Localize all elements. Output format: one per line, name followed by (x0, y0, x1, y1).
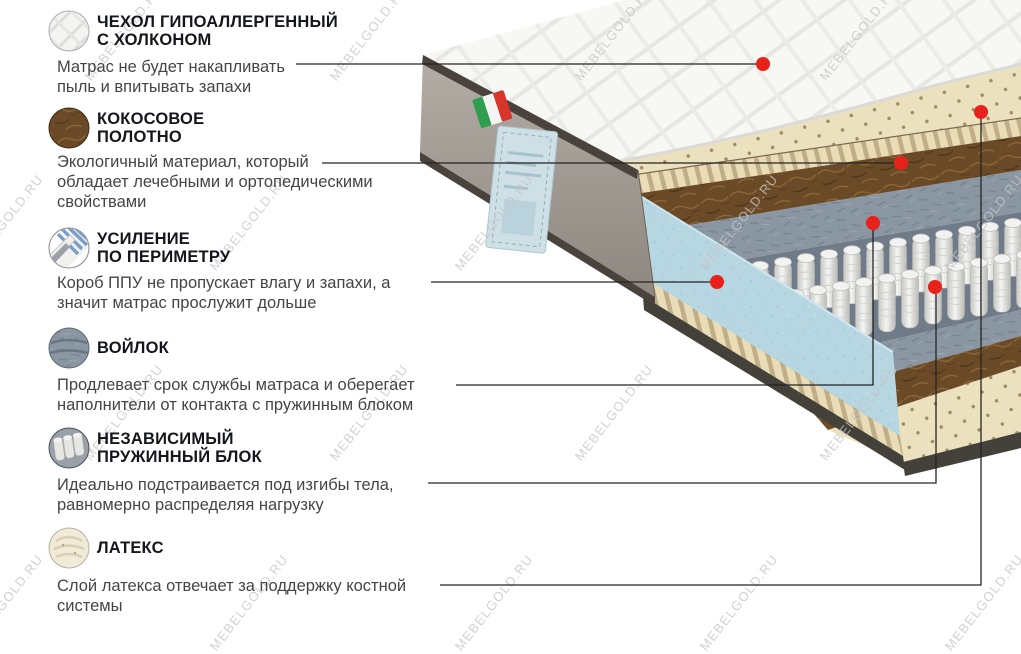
callout-dot-perimeter (710, 275, 724, 289)
callout-dot-latex (974, 105, 988, 119)
callout-line-springs (428, 294, 936, 483)
callout-dot-felt (866, 216, 880, 230)
callout-line-felt (456, 230, 873, 385)
callout-line-latex (440, 119, 981, 585)
callout-dot-coconut (894, 156, 908, 170)
callout-dot-springs (928, 280, 942, 294)
callout-overlay (0, 0, 1021, 625)
callout-dot-cover (756, 57, 770, 71)
infographic-page: { "watermark": { "text": "MEBELGOLD.RU",… (0, 0, 1021, 625)
